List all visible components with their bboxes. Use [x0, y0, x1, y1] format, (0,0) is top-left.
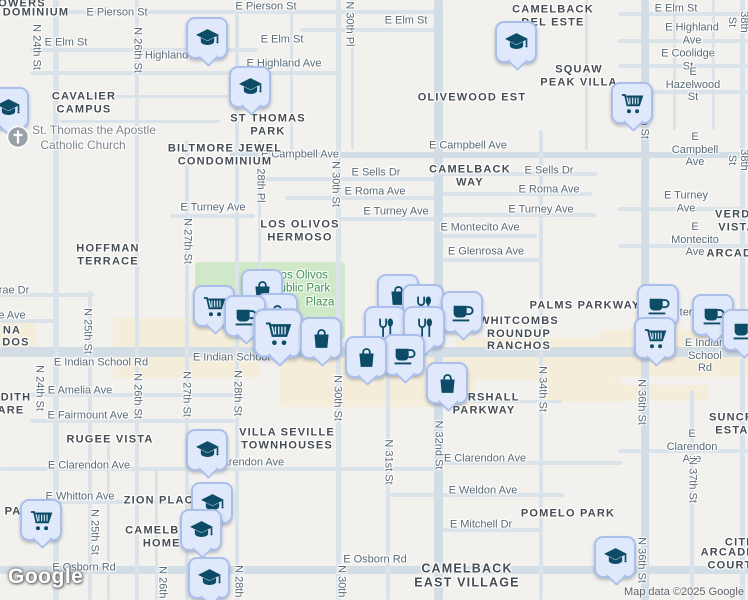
- road: [60, 120, 220, 123]
- neighborhood-label: ST THOMAS PARK: [230, 112, 306, 137]
- road: [300, 28, 437, 32]
- grocery-icon: [263, 318, 293, 348]
- marker-cafe[interactable]: [383, 334, 425, 376]
- cafe-icon: [731, 318, 748, 343]
- marker-shopping[interactable]: [345, 336, 387, 378]
- church-icon: [6, 125, 30, 149]
- cafe-icon: [392, 343, 417, 368]
- road: [386, 350, 390, 600]
- marker-school[interactable]: [186, 17, 228, 59]
- road: [437, 172, 597, 176]
- marker-cafe[interactable]: [722, 309, 748, 351]
- cafe-icon: [450, 300, 475, 325]
- school-icon: [504, 30, 529, 55]
- commercial-area: [540, 378, 622, 402]
- marker-shopping[interactable]: [300, 317, 342, 359]
- grocery-icon: [29, 508, 54, 533]
- marker-grocery[interactable]: [253, 308, 303, 358]
- neighborhood-label: PA: [5, 506, 22, 519]
- school-icon: [195, 26, 220, 51]
- neighborhood-label: RUGEE VISTA: [67, 434, 154, 447]
- marker-shopping[interactable]: [426, 362, 468, 404]
- marker-school[interactable]: [188, 557, 230, 599]
- marker-grocery[interactable]: [611, 82, 653, 124]
- road: [539, 130, 543, 600]
- road: [437, 213, 597, 217]
- street-label: E Osborn Rd: [343, 554, 407, 567]
- road: [618, 39, 748, 43]
- road: [0, 293, 95, 297]
- road: [262, 177, 437, 181]
- neighborhood-label: PALMS PARKWAY: [530, 300, 641, 313]
- road: [618, 12, 748, 16]
- road: [0, 319, 58, 323]
- street-label: N 24th St: [30, 24, 43, 70]
- commercial-area: [455, 338, 605, 380]
- road: [155, 470, 158, 600]
- road: [285, 196, 437, 200]
- neighborhood-label: LOS OLIVOS HERMOSO: [260, 218, 339, 243]
- shopping-icon: [309, 326, 334, 351]
- marker-school[interactable]: [495, 21, 537, 63]
- road: [351, 0, 354, 150]
- neighborhood-label: ARE: [0, 405, 24, 418]
- church-poi[interactable]: [6, 125, 30, 149]
- marker-school[interactable]: [180, 509, 222, 551]
- street-label: E Glenrosa Ave: [448, 246, 524, 259]
- road: [170, 214, 255, 218]
- road: [618, 207, 748, 211]
- school-icon: [603, 545, 628, 570]
- road: [673, 0, 676, 130]
- road: [618, 244, 748, 248]
- shopping-icon: [435, 371, 460, 396]
- road: [55, 10, 440, 14]
- road: [585, 0, 588, 150]
- grocery-icon: [202, 294, 227, 319]
- road: [135, 0, 139, 600]
- street-label: E Montecito Ave: [440, 222, 519, 235]
- marker-cafe[interactable]: [441, 291, 483, 333]
- cafe-icon: [646, 293, 671, 318]
- street-label: E Elm St: [385, 15, 428, 28]
- road: [618, 449, 748, 453]
- road: [50, 95, 235, 98]
- road: [437, 258, 542, 262]
- neighborhood-label: HOFFMAN TERRACE: [76, 242, 139, 267]
- road: [336, 0, 341, 600]
- school-icon: [189, 518, 214, 543]
- marker-school[interactable]: [229, 66, 271, 108]
- road: [30, 419, 235, 423]
- street-label: E Campbell Ave: [669, 131, 722, 169]
- grocery-icon: [643, 326, 668, 351]
- road: [437, 234, 537, 238]
- road: [290, 0, 293, 155]
- road: [740, 0, 745, 600]
- map-attribution: Map data ©2025 Google: [624, 586, 744, 598]
- school-icon: [197, 566, 222, 591]
- road: [437, 192, 592, 196]
- street-label: N 24th St: [33, 365, 46, 411]
- neighborhood-label: OWERS: [0, 0, 46, 10]
- neighborhood-label: POMELO PARK: [521, 508, 615, 521]
- road: [230, 152, 748, 158]
- marker-school[interactable]: [186, 429, 228, 471]
- commercial-area: [618, 385, 708, 401]
- school-icon: [238, 75, 263, 100]
- neighborhood-label: VILLA SEVILLE TOWNHOUSES: [239, 426, 335, 451]
- school-icon: [0, 96, 21, 121]
- street-label: E Elm St: [261, 34, 304, 47]
- road: [88, 290, 92, 600]
- road: [30, 71, 342, 75]
- road: [337, 217, 437, 221]
- road: [618, 64, 748, 68]
- marker-school[interactable]: [594, 536, 636, 578]
- marker-grocery[interactable]: [20, 499, 62, 541]
- road: [690, 390, 694, 600]
- school-icon: [195, 438, 220, 463]
- road: [437, 461, 622, 465]
- road: [437, 528, 542, 532]
- road: [30, 393, 235, 397]
- road: [107, 440, 110, 600]
- street-label: E Montecito Ave: [669, 221, 722, 259]
- street-label: E Coolidge St: [658, 47, 718, 72]
- map-canvas[interactable]: E Pierson StE Pierson StE Elm StE Elm St…: [0, 0, 748, 600]
- shopping-icon: [354, 345, 379, 370]
- road: [712, 0, 715, 130]
- google-logo[interactable]: Google: [8, 565, 83, 589]
- neighborhood-label: DITH: [1, 392, 31, 405]
- marker-school[interactable]: [0, 87, 29, 129]
- grocery-icon: [620, 91, 645, 116]
- marker-grocery[interactable]: [634, 317, 676, 359]
- neighborhood-label: SQUAW PEAK VILLA: [540, 63, 617, 88]
